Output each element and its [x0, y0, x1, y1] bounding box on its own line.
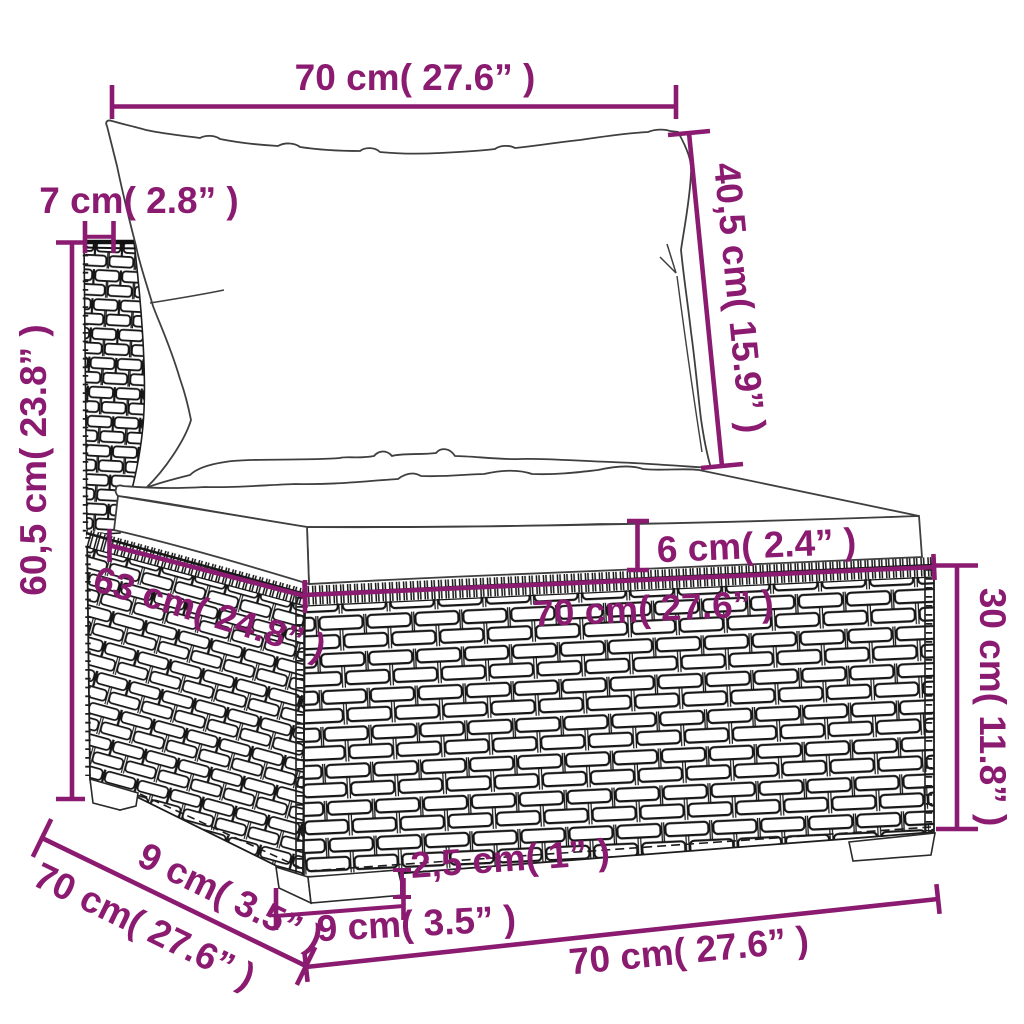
- svg-text:60,5 cm( 23.8” ): 60,5 cm( 23.8” ): [13, 324, 54, 595]
- svg-text:6 cm( 2.4” ): 6 cm( 2.4” ): [656, 521, 857, 571]
- svg-text:7 cm( 2.8” ): 7 cm( 2.8” ): [39, 180, 238, 221]
- svg-text:70 cm( 27.6” ): 70 cm( 27.6” ): [295, 57, 536, 98]
- svg-text:30 cm( 11.8” ): 30 cm( 11.8” ): [972, 588, 1013, 827]
